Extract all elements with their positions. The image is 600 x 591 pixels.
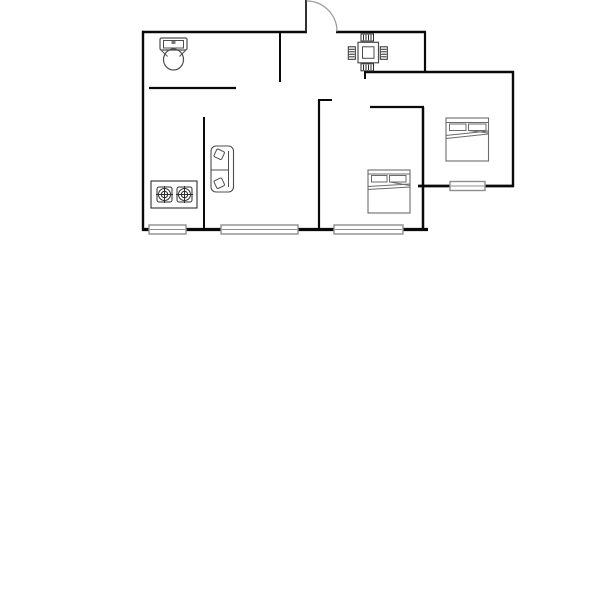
window-kitchen — [149, 225, 186, 234]
window-bedroom2 — [450, 182, 485, 191]
window-bedroom1 — [334, 225, 403, 234]
window-living-room — [221, 225, 298, 234]
canvas-background — [0, 0, 600, 591]
floor-plan-page — [0, 0, 600, 591]
floor-plan-drawing — [0, 0, 600, 591]
